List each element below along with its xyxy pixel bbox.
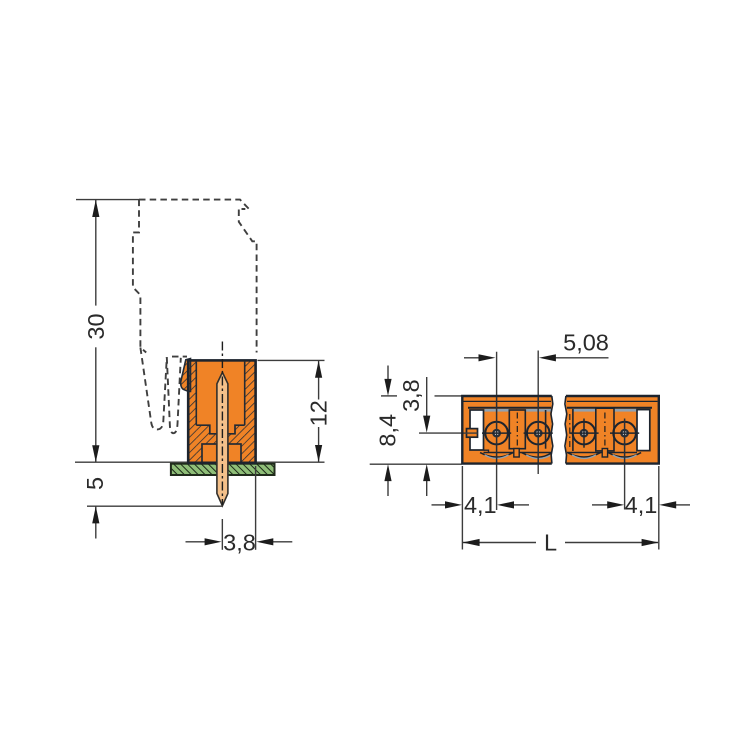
svg-text:4,1: 4,1	[625, 492, 658, 518]
svg-text:3,8: 3,8	[223, 530, 256, 556]
svg-text:8,4: 8,4	[375, 414, 401, 447]
svg-text:5: 5	[82, 477, 108, 490]
svg-text:30: 30	[83, 313, 109, 339]
svg-text:5,08: 5,08	[563, 329, 609, 355]
svg-text:4,1: 4,1	[464, 492, 497, 518]
svg-text:3,8: 3,8	[398, 379, 424, 412]
svg-text:L: L	[544, 530, 557, 556]
svg-text:12: 12	[305, 400, 331, 426]
